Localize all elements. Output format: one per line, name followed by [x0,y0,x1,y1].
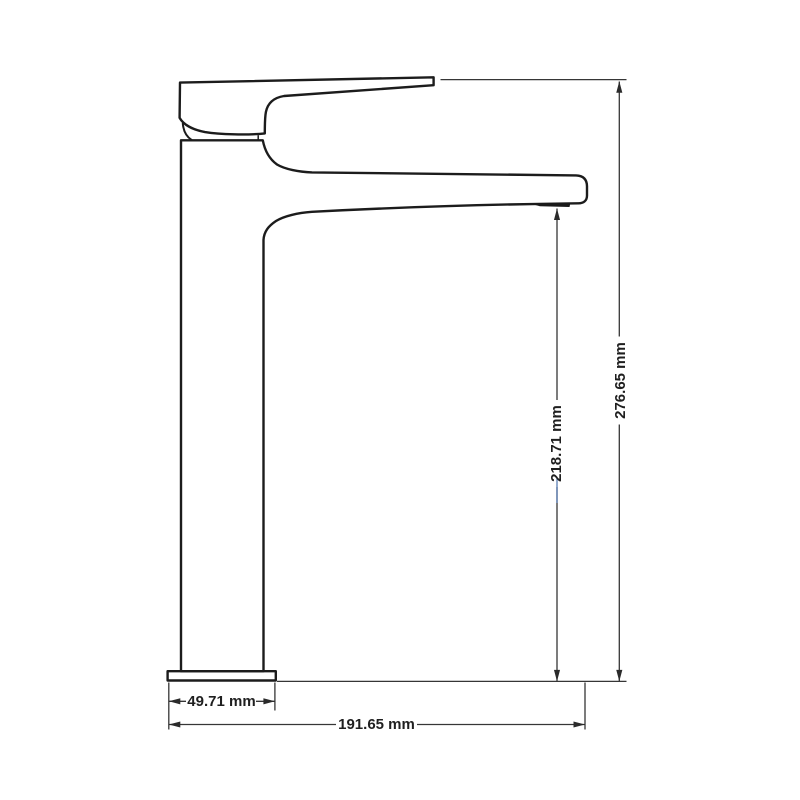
svg-text:276.65 mm: 276.65 mm [612,342,629,419]
svg-text:191.65 mm: 191.65 mm [338,716,415,733]
svg-text:49.71 mm: 49.71 mm [187,693,255,710]
svg-text:218.71 mm: 218.71 mm [548,405,565,482]
